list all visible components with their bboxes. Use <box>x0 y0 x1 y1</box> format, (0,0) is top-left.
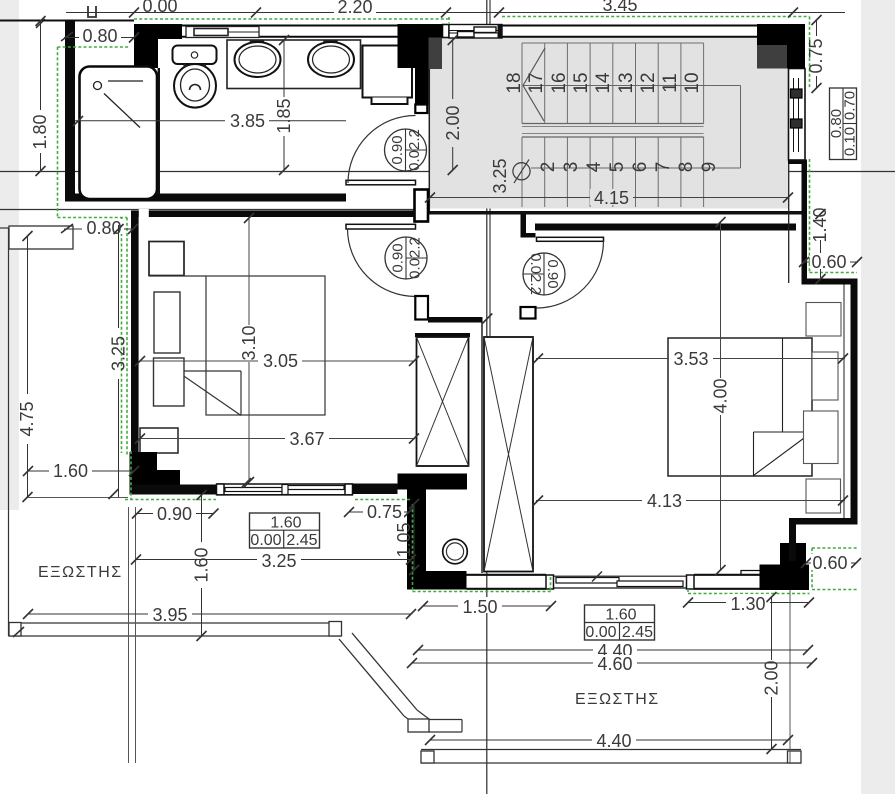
svg-text:0.90: 0.90 <box>390 243 407 272</box>
svg-text:1.80: 1.80 <box>30 114 50 149</box>
svg-text:ΕΞΩΣΤΗΣ: ΕΞΩΣΤΗΣ <box>575 691 660 708</box>
svg-text:3.45: 3.45 <box>602 0 637 15</box>
svg-text:2.45: 2.45 <box>286 532 317 549</box>
svg-text:0.80: 0.80 <box>82 26 117 46</box>
svg-text:1.60: 1.60 <box>53 461 88 481</box>
svg-text:4.40: 4.40 <box>596 731 631 751</box>
svg-text:6: 6 <box>630 162 651 173</box>
svg-text:1.30: 1.30 <box>730 594 765 614</box>
svg-text:15: 15 <box>571 72 592 93</box>
svg-text:0.75: 0.75 <box>806 38 826 73</box>
svg-text:1.85: 1.85 <box>274 98 294 133</box>
svg-text:14: 14 <box>593 72 614 94</box>
svg-text:12: 12 <box>638 72 659 93</box>
svg-text:3.85: 3.85 <box>230 111 265 131</box>
svg-text:4.13: 4.13 <box>647 491 682 511</box>
svg-text:0.60: 0.60 <box>812 553 847 573</box>
svg-text:2: 2 <box>538 162 559 173</box>
svg-text:3.25: 3.25 <box>261 551 296 571</box>
svg-text:1.05: 1.05 <box>394 522 414 557</box>
svg-text:16: 16 <box>549 72 570 93</box>
svg-text:4.15: 4.15 <box>594 188 629 208</box>
svg-text:3.25: 3.25 <box>490 158 510 193</box>
svg-text:0.02.2: 0.02.2 <box>407 237 424 279</box>
svg-text:3.53: 3.53 <box>673 349 708 369</box>
svg-text:13: 13 <box>616 72 637 93</box>
svg-text:5: 5 <box>607 162 628 173</box>
svg-text:0.70: 0.70 <box>842 91 859 120</box>
svg-text:2.20: 2.20 <box>337 0 372 17</box>
svg-text:3.95: 3.95 <box>152 605 187 625</box>
svg-text:3.05: 3.05 <box>263 351 298 371</box>
svg-text:1.40: 1.40 <box>810 207 830 242</box>
svg-text:4.00: 4.00 <box>711 378 731 413</box>
svg-text:1.60: 1.60 <box>270 515 301 532</box>
svg-text:0.75: 0.75 <box>367 502 402 522</box>
svg-text:0.00: 0.00 <box>142 0 177 16</box>
svg-text:17: 17 <box>526 72 547 93</box>
svg-text:11: 11 <box>660 73 681 93</box>
svg-text:1.50: 1.50 <box>462 597 497 617</box>
svg-text:18: 18 <box>504 72 525 93</box>
svg-text:0.00: 0.00 <box>585 624 616 641</box>
svg-text:1.60: 1.60 <box>192 547 212 582</box>
svg-text:1.60: 1.60 <box>605 607 636 624</box>
svg-text:0.00: 0.00 <box>250 532 281 549</box>
svg-text:0.80: 0.80 <box>86 218 121 238</box>
svg-text:4.60: 4.60 <box>597 654 632 674</box>
svg-text:2.00: 2.00 <box>443 105 463 140</box>
svg-text:ΕΞΩΣΤΗΣ: ΕΞΩΣΤΗΣ <box>38 564 123 581</box>
svg-text:0.60: 0.60 <box>811 252 846 272</box>
svg-text:8: 8 <box>676 162 697 173</box>
svg-text:0.90: 0.90 <box>544 259 561 288</box>
svg-text:0.02.2: 0.02.2 <box>527 253 544 295</box>
svg-text:4.75: 4.75 <box>17 401 37 436</box>
svg-text:10: 10 <box>682 72 703 93</box>
svg-text:4: 4 <box>584 161 605 172</box>
svg-text:2.45: 2.45 <box>622 624 653 641</box>
svg-text:3.25: 3.25 <box>109 336 129 371</box>
svg-text:9: 9 <box>699 162 720 173</box>
svg-text:7: 7 <box>653 162 674 173</box>
svg-text:0.90: 0.90 <box>157 504 192 524</box>
svg-text:0.90: 0.90 <box>389 135 406 164</box>
svg-text:3.67: 3.67 <box>289 429 324 449</box>
svg-text:0.10: 0.10 <box>842 127 859 156</box>
svg-text:0.02.2: 0.02.2 <box>406 129 423 171</box>
svg-text:3.10: 3.10 <box>239 325 259 360</box>
svg-text:3: 3 <box>561 162 582 173</box>
svg-text:2.00: 2.00 <box>762 660 782 695</box>
